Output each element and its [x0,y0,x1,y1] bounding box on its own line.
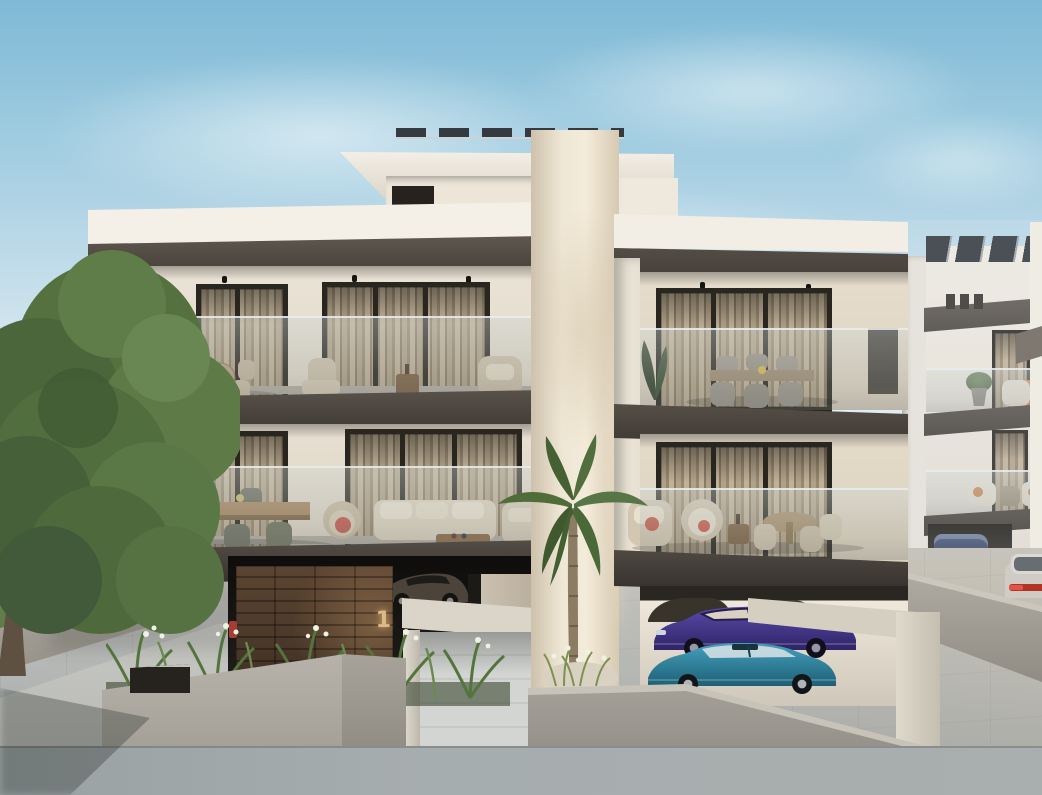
sidewalk [0,746,1042,795]
downlight [352,275,357,282]
palm-planting-bed [540,616,620,696]
right-lower-balcony-railing [640,488,908,560]
sunlit-corner-pillar [896,612,940,762]
right-upper-balcony-railing [640,328,908,410]
distance-haze [900,220,1042,590]
right-upper-soffit-shadow [640,272,908,286]
water-feature [130,664,190,693]
architectural-render: 1 [0,0,1042,795]
